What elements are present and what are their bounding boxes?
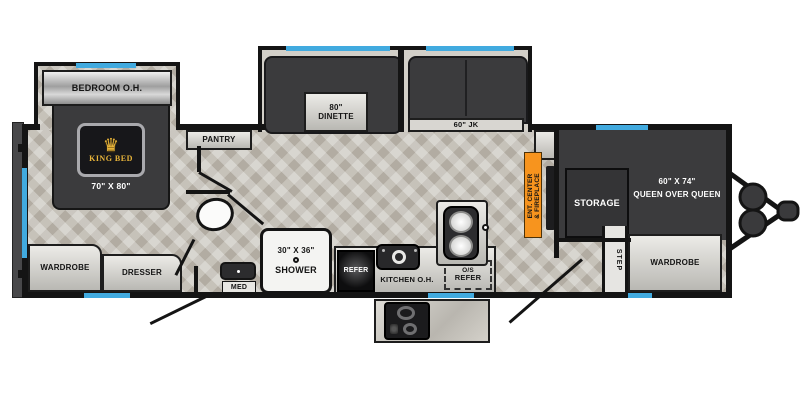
window	[84, 293, 130, 298]
dinette-size-label: 80"	[329, 103, 342, 112]
bunk-labels: 60" X 74" QUEEN OVER QUEEN	[630, 166, 724, 210]
rear-wardrobe-label: WARDROBE	[40, 263, 89, 272]
king-bed-badge: ♛ KING BED	[77, 123, 145, 177]
dresser: DRESSER	[102, 254, 182, 292]
med-label: MED	[231, 284, 247, 292]
dresser-label: DRESSER	[122, 268, 162, 277]
king-bed-size: 70" X 80"	[91, 182, 130, 192]
sofa-label: 60" JK	[454, 121, 479, 130]
shower: 30" X 36" SHOWER	[260, 228, 332, 294]
storage-label: STORAGE	[574, 198, 620, 208]
window	[426, 46, 514, 51]
step-label: STEP	[614, 249, 622, 271]
dinette-table: 80" DINETTE	[304, 92, 368, 132]
bunk-size-label: 60" X 74"	[659, 177, 696, 186]
crown-icon: ♛	[103, 136, 119, 154]
shower-label: SHOWER	[275, 265, 317, 275]
front-wardrobe: WARDROBE	[628, 234, 722, 292]
sofa	[408, 56, 528, 124]
sofa-seam	[465, 60, 467, 116]
window	[22, 168, 27, 258]
kitchen-overhead-label: KITCHEN O.H.	[380, 276, 433, 285]
bedroom-overhead-cabinet: BEDROOM O.H.	[42, 70, 172, 106]
kitchen-overhead: KITCHEN O.H.	[370, 272, 444, 288]
refer-label: REFER	[344, 267, 369, 275]
kitchen-sink-icon	[443, 206, 479, 260]
rear-entry-door-swing	[150, 295, 207, 325]
ent-center-fireplace: ENT. CENTER & FIREPLACE	[524, 152, 542, 238]
rear-wardrobe: WARDROBE	[28, 244, 102, 292]
propane-tanks-icon	[726, 150, 800, 270]
bath-wall	[186, 190, 230, 194]
pantry-cabinet: PANTRY	[186, 130, 252, 150]
window	[286, 46, 390, 51]
window	[76, 63, 136, 68]
ent-center-label-1: ENT. CENTER	[527, 174, 534, 219]
bedroom-overhead-label: BEDROOM O.H.	[72, 83, 142, 93]
med-cabinet: MED	[216, 262, 260, 294]
outside-griddle-icon	[384, 302, 430, 340]
shower-size-label: 30" X 36"	[278, 246, 315, 255]
wall-front-right	[726, 124, 732, 298]
dinette-label: DINETTE	[318, 112, 354, 121]
ent-center-label-2: & FIREPLACE	[534, 173, 541, 219]
entry-step: STEP	[602, 226, 628, 294]
bunk-bottom-wall	[559, 238, 631, 242]
stove-icon	[376, 244, 420, 270]
window	[628, 293, 652, 298]
window	[428, 293, 474, 298]
faucet-icon	[482, 224, 489, 231]
pantry-label: PANTRY	[202, 135, 235, 144]
sofa-front: 60" JK	[408, 118, 524, 132]
window	[596, 125, 648, 130]
wall-top-mid	[176, 124, 266, 130]
front-wardrobe-label: WARDROBE	[650, 258, 699, 267]
king-bed-badge-label: KING BED	[89, 154, 133, 163]
king-bed: ♛ KING BED 70" X 80"	[52, 104, 170, 210]
bath-wall-lower	[194, 266, 198, 294]
bath-sink-icon	[220, 262, 256, 280]
bunk-label: QUEEN OVER QUEEN	[633, 190, 720, 199]
floorplan-canvas: BEDROOM O.H. ♛ KING BED 70" X 80" WARDRO…	[0, 0, 800, 400]
shower-head-icon	[293, 257, 299, 263]
slide-divider-wall	[398, 46, 404, 132]
outside-refer-line2: REFER	[455, 274, 481, 283]
pantry-wall	[197, 146, 201, 172]
